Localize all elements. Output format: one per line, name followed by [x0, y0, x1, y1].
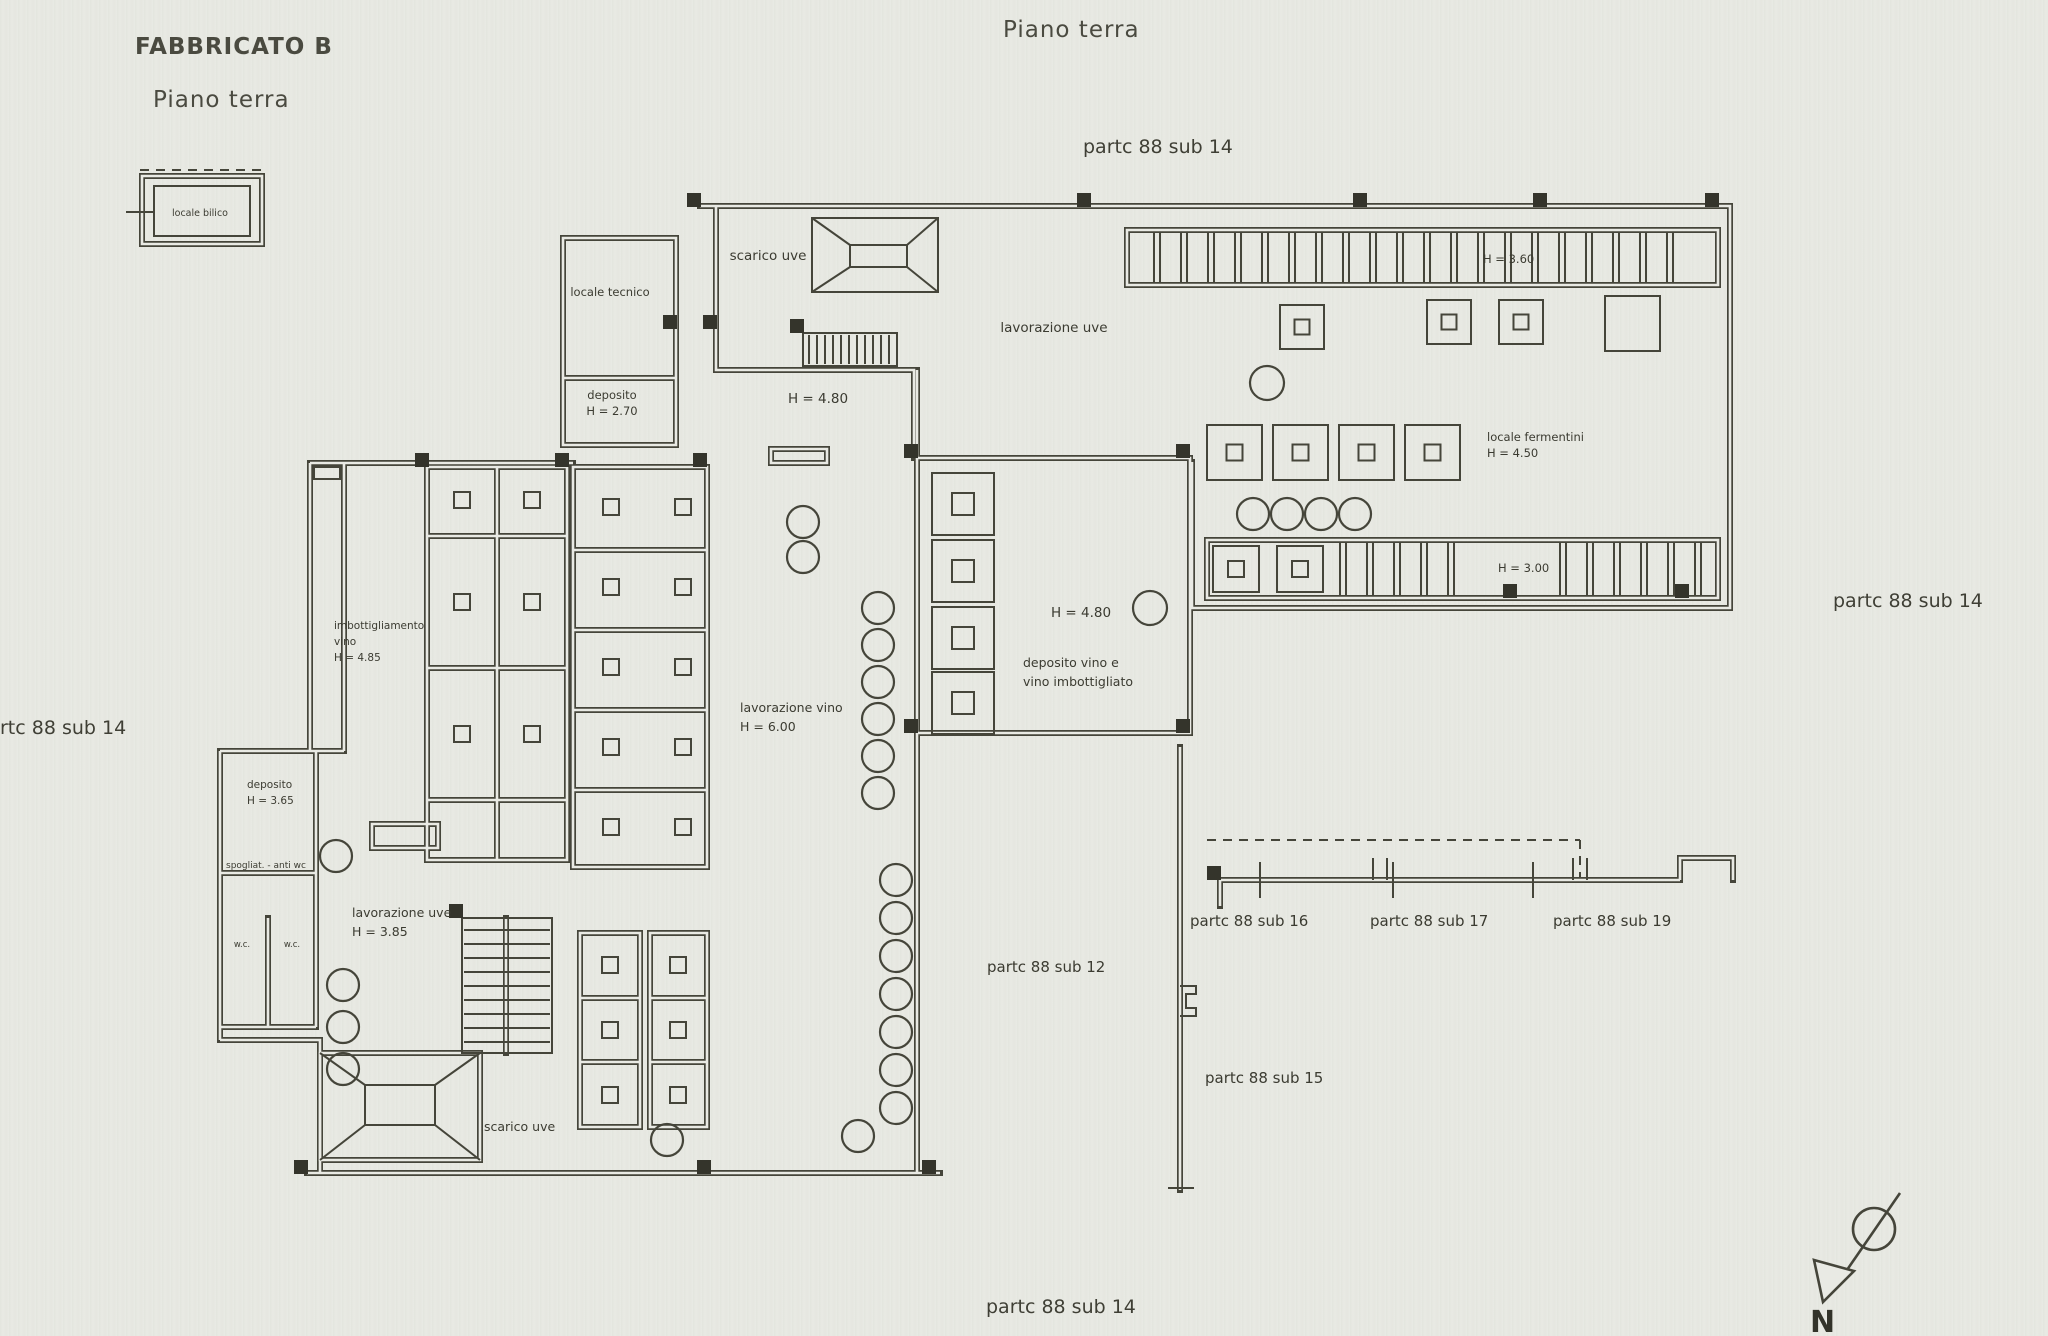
dashed-boundaries	[140, 170, 1580, 877]
room-label-wc-2: w.c.	[284, 940, 300, 950]
room-height-imbottigliamento: H = 4.85	[334, 652, 381, 664]
room-height-fermenter-row: H = 3.60	[1483, 252, 1534, 266]
room-height-deposito-vino: H = 4.80	[1051, 605, 1111, 621]
compass-north-label: N	[1810, 1305, 1835, 1336]
walls-layer	[142, 176, 1733, 1190]
parcel-label-sub19: partc 88 sub 19	[1553, 912, 1671, 930]
floor-title-top: Piano terra	[1003, 17, 1140, 43]
parcel-label-left: rtc 88 sub 14	[0, 717, 126, 739]
labels-layer: FABBRICATO B Piano terra Piano terra par…	[0, 17, 1983, 1318]
room-height-deposito-nord: H = 2.70	[586, 404, 637, 418]
room-label-lavorazione-vino: lavorazione vino	[740, 700, 843, 715]
pillar-squares	[454, 300, 1543, 1103]
parcel-label-sub12: partc 88 sub 12	[987, 958, 1105, 976]
room-label-spogliatoio: spogliat. - anti wc	[226, 861, 306, 871]
north-compass: N	[1810, 1193, 1900, 1336]
room-label-fermentini: locale fermentini	[1487, 430, 1584, 444]
room-height-hall-top: H = 4.80	[788, 391, 848, 407]
parcel-label-right: partc 88 sub 14	[1833, 590, 1983, 612]
room-label-deposito-nord: deposito	[587, 388, 636, 402]
room-height-fermentini: H = 4.50	[1487, 446, 1538, 460]
building-title: FABBRICATO B	[135, 34, 333, 60]
room-label-scarico-uve-top: scarico uve	[730, 248, 807, 264]
fermenter-row-tanks	[1154, 232, 1673, 283]
room-height-lavorazione-uve-low: H = 3.85	[352, 924, 408, 939]
room-height-tank-row: H = 3.00	[1498, 561, 1549, 575]
floor-plan-canvas: N FABBRICATO B Piano terra Piano terra p…	[0, 0, 2048, 1336]
room-height-deposito-ovest: H = 3.65	[247, 795, 294, 807]
parcel-label-sub15: partc 88 sub 15	[1205, 1069, 1323, 1087]
stairs-top-treads	[809, 335, 889, 364]
room-label-lavorazione-uve-low: lavorazione uve	[352, 905, 452, 920]
room-label-scarico-uve-bottom: scarico uve	[484, 1119, 555, 1134]
floor-title-left: Piano terra	[153, 87, 290, 113]
room-label-deposito-vino-2: vino imbottigliato	[1023, 674, 1133, 689]
room-label-imbottigliamento-2: vino	[334, 636, 356, 648]
room-label-imbottigliamento-1: imbottigliamento	[334, 620, 424, 632]
parcel-label-sub17: partc 88 sub 17	[1370, 912, 1488, 930]
round-tanks	[320, 366, 1371, 1156]
room-label-locale-tecnico: locale tecnico	[570, 285, 649, 299]
room-label-lavorazione-uve-top: lavorazione uve	[1000, 320, 1107, 336]
room-label-deposito-vino-1: deposito vino e	[1023, 655, 1119, 670]
room-height-lavorazione-vino: H = 6.00	[740, 719, 796, 734]
parcel-label-sub16: partc 88 sub 16	[1190, 912, 1308, 930]
room-label-wc-1: w.c.	[234, 940, 250, 950]
parcel-label-bottom: partc 88 sub 14	[986, 1296, 1136, 1318]
parcel-label-top: partc 88 sub 14	[1083, 136, 1233, 158]
room-label-locale-bilico: locale bilico	[172, 208, 228, 219]
room-label-deposito-ovest: deposito	[247, 779, 292, 791]
